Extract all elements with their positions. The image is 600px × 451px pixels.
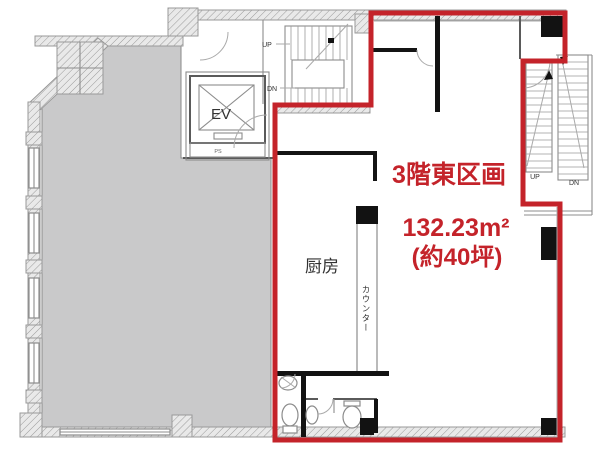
neighbor-unit-area	[42, 46, 271, 429]
floor-plan-svg: EV PS UP DN UP DN	[0, 0, 600, 451]
wc-fixtures	[279, 376, 361, 433]
toilet-right-tank	[344, 401, 360, 406]
stairs-east: UP DN	[524, 55, 592, 215]
door-lobby-top	[200, 32, 228, 60]
urinal	[306, 406, 318, 424]
top-partition-wall	[435, 16, 440, 112]
stairs-center-up-label: UP	[262, 42, 272, 49]
elevator: EV PS	[186, 72, 269, 160]
floor-plan: EV PS UP DN UP DN	[0, 0, 600, 451]
stairs-center: UP DN	[262, 24, 352, 104]
door-wc	[318, 399, 333, 414]
pipe-space	[190, 143, 265, 157]
kitchen-walls	[277, 151, 375, 181]
area-tsubo-label: (約40坪)	[412, 243, 503, 271]
elevator-label: EV	[211, 106, 231, 123]
section-label: 3階東区画	[392, 161, 506, 189]
labels: 3階東区画 132.23m² (約40坪) 厨房 カウンター	[305, 161, 510, 333]
ps-label: PS	[214, 149, 222, 155]
stairs-east-dn-label: DN	[569, 180, 579, 187]
toilet-left	[282, 404, 298, 426]
counter-label: カウンター	[361, 285, 371, 333]
kitchen-label: 厨房	[305, 257, 339, 276]
stairs-east-up-label: UP	[530, 174, 540, 181]
stairs-center-dn-label: DN	[267, 86, 277, 93]
toilet-right	[343, 406, 361, 428]
door-top-room	[417, 50, 433, 66]
area-sqm-label: 132.23m²	[402, 214, 509, 242]
